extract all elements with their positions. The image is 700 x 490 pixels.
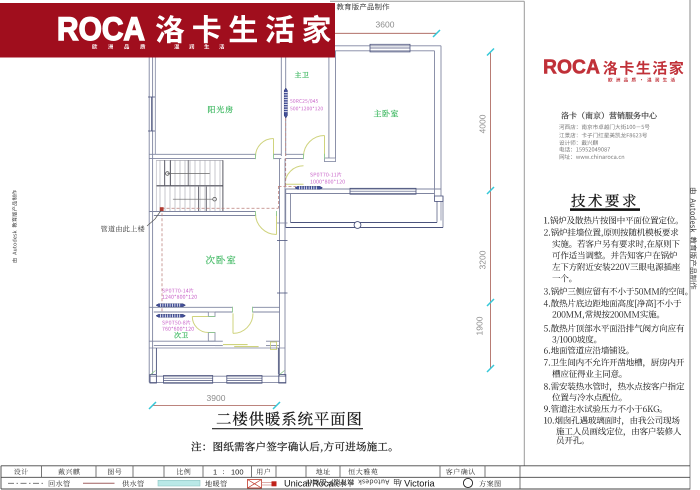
svg-text:100: 100 (231, 468, 244, 477)
svg-text:ROCA: ROCA (543, 57, 600, 79)
svg-text:3200: 3200 (478, 250, 488, 269)
svg-text:1: 1 (213, 468, 217, 477)
svg-text:3600: 3600 (376, 20, 395, 30)
svg-text:4000: 4000 (478, 114, 488, 133)
svg-text:1900: 1900 (475, 316, 485, 335)
svg-text:ROCA: ROCA (57, 11, 145, 47)
svg-text:3900: 3900 (207, 393, 226, 403)
svg-text:/ Victoria: / Victoria (399, 479, 435, 489)
